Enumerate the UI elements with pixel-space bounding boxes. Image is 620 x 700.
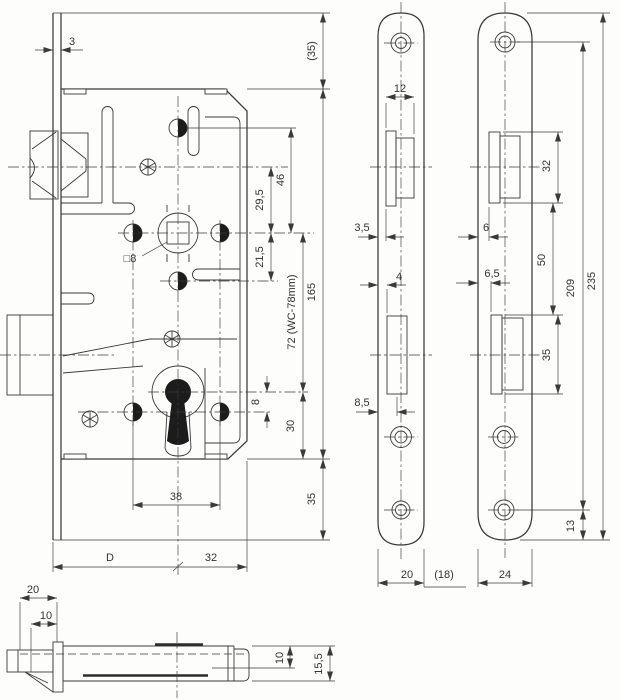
- case-notch: [64, 89, 86, 94]
- leader-line: [142, 242, 167, 256]
- dim-label-inner-10: 10: [274, 652, 286, 664]
- dim-label-case-height: 165: [306, 283, 318, 301]
- dim-label-plate-width-20: 20: [401, 569, 413, 581]
- dim-label-29-5: 29,5: [254, 189, 266, 210]
- dim-label-4: 4: [396, 271, 402, 283]
- follower-hub: [142, 213, 198, 256]
- front-dimensions: [35, 13, 323, 572]
- latch-head-top-view: [7, 650, 53, 672]
- dim-label-strike-32: 32: [541, 160, 553, 172]
- strike-dimensions: [456, 13, 610, 587]
- dim-label-top-10: 10: [40, 610, 52, 622]
- fixing-holes: [124, 119, 229, 421]
- strike-plate-view: 32 6 6,5 50 35 209 235 13 24: [456, 2, 610, 587]
- dim-label-plate-thickness: 3: [69, 36, 75, 48]
- top-view-dimensions: [20, 598, 335, 681]
- dim-label-6-5: 6,5: [484, 268, 499, 280]
- faceplate-latch-cutout: [386, 131, 414, 206]
- dim-label-15-5: 15,5: [313, 653, 325, 674]
- dim-label-24: 24: [499, 569, 511, 581]
- case-notch: [205, 454, 227, 459]
- dim-label-backset-D: D: [106, 552, 114, 564]
- strike-centerlines: [470, 2, 540, 558]
- front-view-lock-case: 3 (35) 46 29,5 21,5 72 (WC-78mm) 165 □8 …: [0, 13, 330, 575]
- dim-label-plate-width-18: (18): [434, 569, 454, 581]
- dim-label-3-5: 3,5: [354, 222, 369, 234]
- faceplate-view: 12 3,5 4 8,5 20 (18): [354, 2, 466, 587]
- dim-label-32-back: 32: [205, 552, 217, 564]
- dim-label-209: 209: [565, 279, 577, 297]
- latch-bolt: [30, 131, 88, 199]
- case-notch: [205, 89, 227, 94]
- dim-label-strike-35: 35: [541, 349, 553, 361]
- case-top-view: [63, 645, 249, 682]
- strike-latch-opening: [489, 132, 520, 203]
- label-follower-square: □8: [124, 253, 137, 265]
- dim-label-72-wc: 72 (WC-78mm): [286, 274, 298, 349]
- latch-bevel: [18, 650, 53, 692]
- dim-label-38: 38: [170, 491, 182, 503]
- dim-label-8-5: 8,5: [354, 397, 369, 409]
- centerlines: [0, 96, 314, 575]
- drawing-sheet: 3 (35) 46 29,5 21,5 72 (WC-78mm) 165 □8 …: [0, 0, 620, 700]
- dim-label-13: 13: [565, 520, 577, 532]
- top-view-lock-case: 20 10 10 15,5: [7, 584, 335, 698]
- dim-label-235: 235: [586, 272, 598, 290]
- dim-label-21-5: 21,5: [254, 246, 266, 267]
- faceplate-dimensions: [356, 97, 466, 587]
- dim-label-12: 12: [394, 83, 406, 95]
- faceplate-front: [53, 13, 61, 540]
- dim-label-46: 46: [275, 174, 287, 186]
- dim-label-30: 30: [285, 420, 297, 432]
- screw-symbols: [82, 159, 180, 427]
- dim-label-50: 50: [536, 254, 548, 266]
- strike-bolt-opening: [491, 315, 523, 394]
- lock-case-outline: [61, 89, 247, 459]
- dim-label-6: 6: [483, 222, 489, 234]
- dim-label-bottom-overhang: 35: [306, 493, 318, 505]
- faceplate-top-view: [53, 642, 63, 692]
- dim-label-top-20: 20: [27, 584, 39, 596]
- lock-drawing: 3 (35) 46 29,5 21,5 72 (WC-78mm) 165 □8 …: [0, 0, 620, 700]
- dim-label-top-overhang: (35): [306, 41, 318, 61]
- dim-label-8: 8: [250, 399, 262, 405]
- case-notch: [64, 454, 86, 459]
